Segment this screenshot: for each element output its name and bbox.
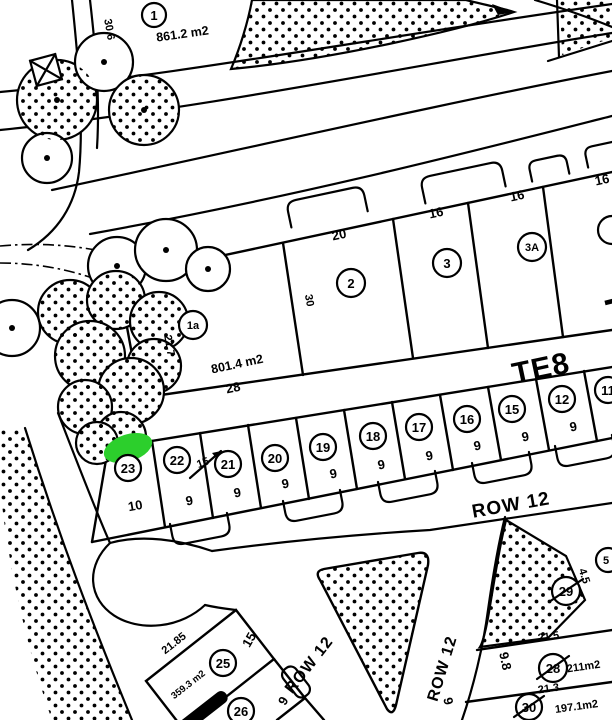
lot22-dim: 9 [184, 493, 194, 509]
lot25-area: 359.3 m2 [169, 668, 207, 701]
lot20-dim: 9 [280, 476, 290, 492]
stipple-island-top [231, 0, 514, 69]
lot15-dim: 9 [520, 429, 530, 445]
stipple-area-left [0, 428, 132, 720]
lot28-dim-top: 21.5 [537, 630, 560, 645]
road-label-row12-right: ROW 12 [425, 634, 461, 703]
lot1a-area: 801.4 m2 [210, 352, 265, 377]
lot1a-dim-bottom: 28 [224, 379, 241, 397]
lot1a-number: 1a [187, 320, 200, 332]
lot19-number: 19 [316, 440, 330, 455]
tree-icon [186, 247, 230, 291]
lot18-dim: 9 [376, 457, 386, 473]
lot1-area: 861.2 m2 [155, 23, 209, 44]
lot25-dim-ne: 15 [239, 630, 259, 650]
lot21-dim: 9 [232, 485, 242, 501]
lot22-number: 22 [170, 453, 184, 468]
lot2-dim-side: 30 [302, 293, 316, 307]
lot30-area: 197.1m2 [554, 698, 599, 716]
lot4-dim-top: 16 [593, 171, 610, 189]
survey-marker-icon [30, 54, 62, 86]
lot3a-number: 3A [525, 242, 539, 254]
lot2-dim-top: 20 [330, 226, 347, 244]
lot12-number: 12 [555, 392, 569, 407]
block-label-te8: TE8 [509, 347, 573, 391]
lot25-number: 25 [216, 656, 230, 671]
lot17-number: 17 [412, 420, 426, 435]
lot3-dim-top: 16 [427, 204, 444, 222]
triangle-island [318, 553, 429, 712]
lot25-dim-nw: 21.85 [160, 630, 189, 656]
lot11-number: 11 [601, 383, 612, 398]
lot3-number: 3 [443, 256, 450, 271]
lot23-dim: 10 [127, 497, 144, 514]
lot-edge-partial-number: 5 [603, 555, 609, 567]
cadastral-map: 1 1a 2 3 3A 23 22 21 20 19 18 17 16 15 1… [0, 0, 612, 720]
top-right-corner [535, 0, 612, 61]
lot3a-dim-top: 16 [508, 187, 525, 205]
lot12-dim: 9 [568, 419, 578, 435]
lot15-number: 15 [505, 402, 519, 417]
lot26-number: 26 [234, 704, 248, 719]
lot28-area: 211m2 [566, 659, 601, 676]
lot2-number: 2 [347, 276, 354, 291]
lot23-number: 23 [121, 461, 135, 476]
lot25-dim-se: 9 [275, 694, 292, 708]
lot1-number: 1 [150, 8, 157, 23]
lot17-dim: 9 [424, 448, 434, 464]
tree-icon [22, 133, 72, 183]
lot16-number: 16 [460, 412, 474, 427]
lot-partial-circle [598, 216, 612, 244]
tree-icon [0, 300, 40, 356]
lot28-dim-left: 9.8 [496, 651, 514, 672]
lot18-number: 18 [366, 429, 380, 444]
block-label-te8-partial: T [596, 287, 612, 315]
lot21-number: 21 [221, 457, 235, 472]
lot19-dim: 9 [328, 466, 338, 482]
lot16-dim: 9 [472, 438, 482, 454]
lot20-number: 20 [268, 451, 282, 466]
tree-cluster-stippled [38, 271, 188, 464]
lot30-dim-top: 21.3 [537, 682, 560, 697]
